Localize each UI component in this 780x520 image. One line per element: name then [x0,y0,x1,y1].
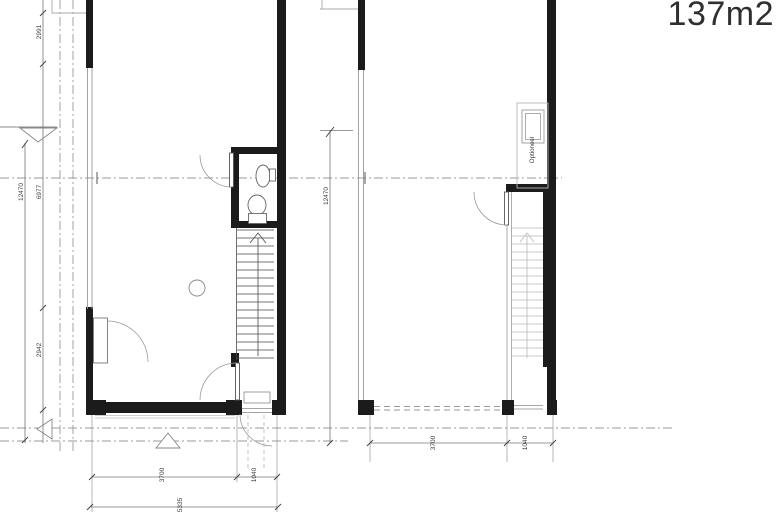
door-leaf [230,153,234,187]
dim-v1: 2991 [36,24,43,39]
top-left-outline [52,0,88,13]
floor-plan-sheet: 137m2 [0,0,780,520]
dimensions-right-plan: 12470 3700 1040 [320,127,556,462]
dim-h2-left: 1040 [251,467,258,482]
door-swing-arc [474,192,507,225]
dimensions-bottom-left: 3700 1040 5335 [87,415,281,512]
right-floor-plan: Optioneel [320,0,557,415]
dim-h-total: 5335 [177,497,184,512]
level-marker-down-icon [20,128,57,142]
left-plan-sill [95,416,235,419]
dim-h1-left: 3700 [159,467,166,482]
dim-h2-right: 1040 [522,435,529,450]
dim-h1-right: 3700 [430,435,437,450]
storage-label: Optioneel [529,137,536,164]
door-swing-arc [107,321,148,362]
door-leaf [236,363,240,400]
column-symbol [189,280,205,296]
dim-v3: 2942 [36,342,43,357]
sink-tap-icon [270,169,276,181]
door-leaf [505,192,509,225]
sink-icon [256,165,270,187]
entrance-marker-up-icon [156,433,180,448]
storage-unit: Optioneel [517,103,548,188]
door-swing-arc [200,363,237,400]
left-floor-plan [52,0,286,446]
section-marker-left-icon [37,419,52,439]
right-plan-doors [474,192,509,225]
dim-v-total: 12470 [18,183,25,201]
right-plan-open-wall [359,70,364,400]
toilet-room [248,165,276,224]
right-plan-open-facade [374,407,502,411]
left-plan-window-wall [88,68,93,309]
floor-plan-drawing: Optioneel [0,0,780,520]
entry-mat [244,392,270,403]
top-left-outline-right [320,0,358,9]
dim-v2: 6977 [36,184,43,199]
dimension-ticks [326,127,556,446]
dim-v-total-right: 12470 [323,187,330,205]
toilet-cistern-icon [249,214,267,224]
dimensions-left-side: 2991 12470 6977 2942 [18,0,46,443]
shaft-closet [94,318,108,363]
staircase-left [237,228,275,360]
staircase-right [507,192,543,400]
door-swing-arc [200,155,232,187]
toilet-icon [248,195,266,215]
dimension-ticks [22,10,46,443]
grid-lines [0,0,672,452]
right-plan-sill [514,406,543,410]
